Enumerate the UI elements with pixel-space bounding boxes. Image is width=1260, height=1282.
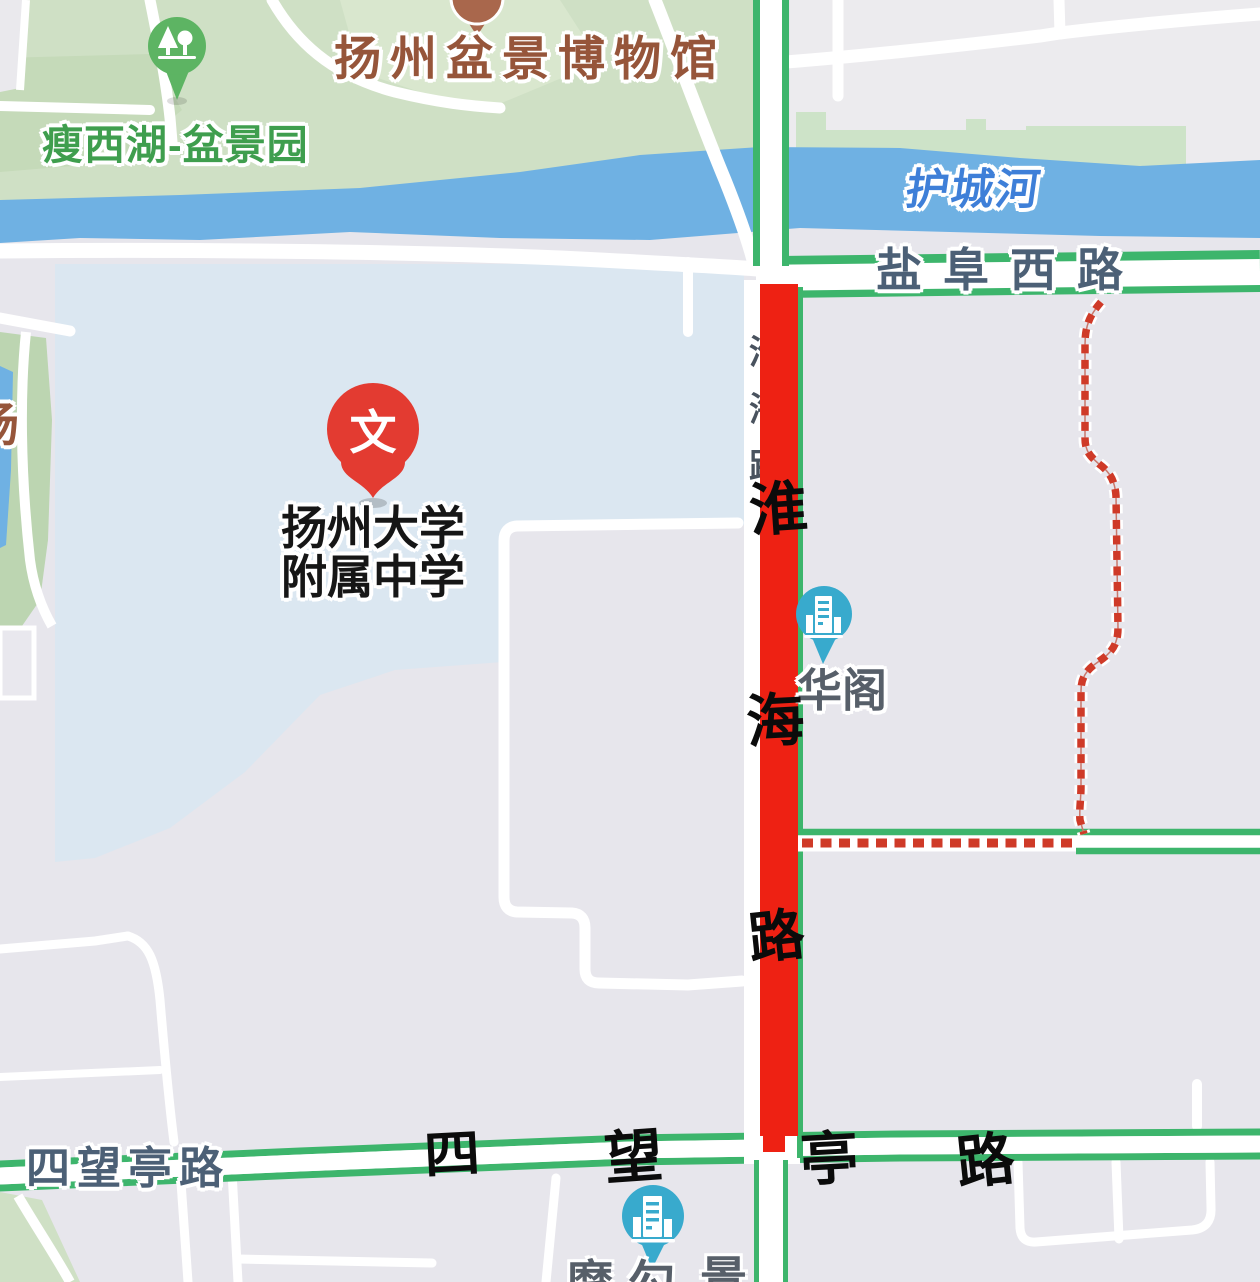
map-base-layer: 淮 海 路 文 bbox=[0, 0, 1260, 1282]
pin-glyph: 文 bbox=[350, 406, 397, 459]
closed-road-highlight bbox=[760, 284, 798, 1136]
west-lot bbox=[0, 628, 34, 698]
yanfu-west-road bbox=[756, 271, 1260, 278]
huaihai-road-south bbox=[757, 1158, 785, 1282]
closed-road-stub bbox=[763, 1136, 785, 1152]
map-canvas[interactable]: 淮 海 路 文 bbox=[0, 0, 1260, 1282]
